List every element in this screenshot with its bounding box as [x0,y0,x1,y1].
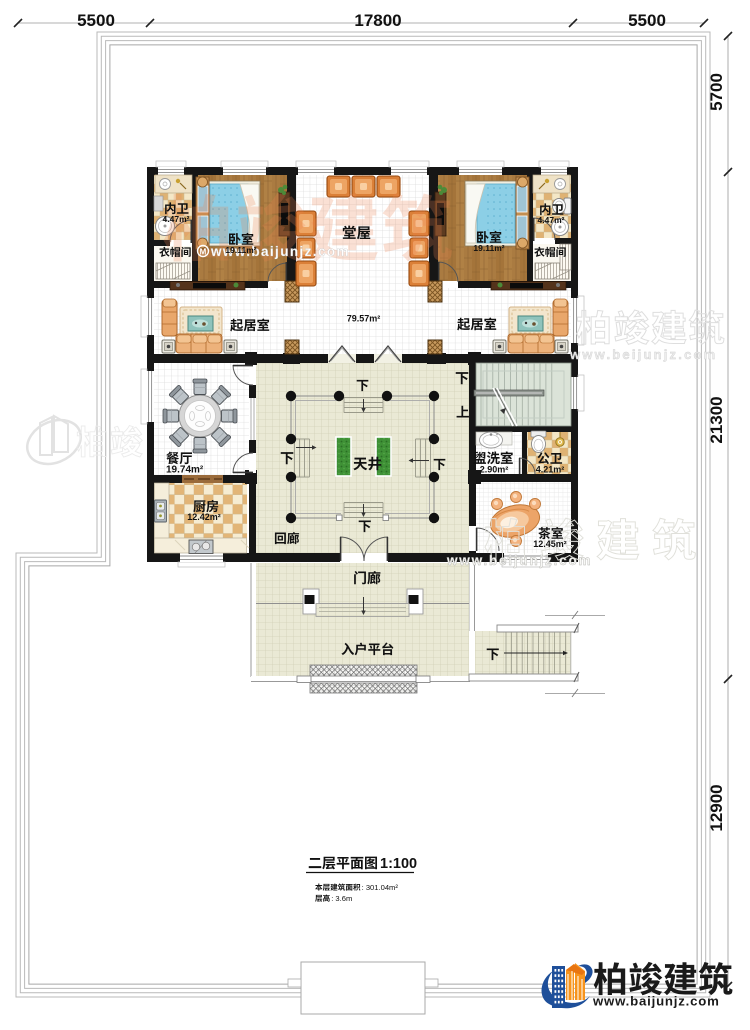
svg-text:12.45m²: 12.45m² [533,539,567,549]
svg-text:12.42m²: 12.42m² [187,512,221,522]
svg-text:: 301.04m²: : 301.04m² [362,883,399,892]
svg-text:4.21m²: 4.21m² [536,465,565,475]
svg-text:2.90m²: 2.90m² [480,465,509,475]
svg-text:4.47m²: 4.47m² [163,214,190,224]
svg-text:5500: 5500 [628,11,666,30]
svg-text:www.baijunjz.com: www.baijunjz.com [592,994,720,1009]
svg-text:1:100: 1:100 [380,856,417,872]
svg-text:5500: 5500 [77,11,115,30]
svg-text:79.57m²: 79.57m² [347,314,381,324]
svg-text:21300: 21300 [707,396,726,443]
svg-text:: 3.6m: : 3.6m [331,894,352,903]
svg-text:5700: 5700 [707,73,726,111]
svg-text:12900: 12900 [707,784,726,831]
svg-text:M: M [200,248,207,257]
svg-text:19.74m²: 19.74m² [166,465,204,476]
svg-text:19.11m²: 19.11m² [225,245,256,255]
svg-text:19.11m²: 19.11m² [473,243,504,253]
svg-text:17800: 17800 [354,11,401,30]
svg-text:4.47m²: 4.47m² [538,215,565,225]
svg-text:www.beijunjz.com: www.beijunjz.com [569,347,717,362]
svg-text:www.beijunjz.com: www.beijunjz.com [446,553,592,568]
